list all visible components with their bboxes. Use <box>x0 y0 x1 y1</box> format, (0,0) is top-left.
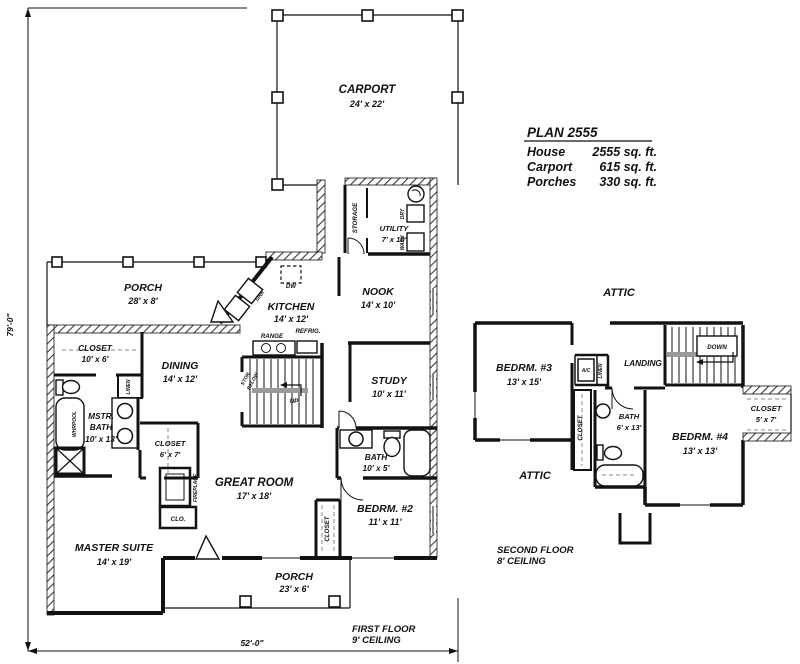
first-floor-plan: DRY WASH STORAGE UTILITY 7' x 10' PORCH … <box>47 178 437 646</box>
clo-label: CLO. <box>171 516 186 523</box>
hall-closet-dining: LINEN CLOSET 10' x 6' DINING 14' x 12' <box>54 332 198 398</box>
whirlpool-label: WHRPOOL <box>72 411 78 437</box>
master-closet-size: 6' x 7' <box>160 450 182 459</box>
dryer-icon <box>407 205 424 222</box>
wall-porch-back <box>47 325 240 333</box>
front-porch-label: PORCH <box>124 282 162 294</box>
range-icon <box>253 341 295 355</box>
rear-porch: PORCH 23' x 6' <box>163 558 350 608</box>
range-label: RANGE <box>261 333 284 340</box>
stairs-down-label: DOWN <box>707 344 727 351</box>
master-suite-size: 14' x 19' <box>97 557 132 567</box>
master-bath: WHRPOOL MSTR. BATH 10' x 13' <box>54 398 138 476</box>
dimension-annotations: 79'-0" 52'-0" <box>5 8 458 662</box>
sink-icon <box>596 404 610 418</box>
closet4-size: 5' x 7' <box>756 415 778 424</box>
kitchen-nook: SINK DW RANGE REFRIG. KITCHEN 14' x 12' … <box>211 257 430 355</box>
landing-label: LANDING <box>624 358 662 368</box>
carport-label: CARPORT <box>339 84 397 96</box>
bedroom3-label: BEDRM. #3 <box>496 362 552 374</box>
master-bath-size: 10' x 13' <box>85 434 118 444</box>
nook-size: 14' x 10' <box>361 300 396 310</box>
front-porch-size: 28' x 8' <box>127 296 158 306</box>
plan-row-label-carport: Carport <box>527 160 573 174</box>
second-floor-caption-2: 8' CEILING <box>497 556 546 567</box>
utility-room: DRY WASH STORAGE UTILITY 7' x 10' <box>345 185 430 254</box>
ac-linen-closets: A/C LINEN <box>575 355 608 388</box>
overall-height-dimension: 79'-0" <box>5 313 15 337</box>
nook-label: NOOK <box>362 286 395 298</box>
hall-bath-label: BATH <box>365 452 388 462</box>
hall-bath: BATH 10' x 5' <box>337 411 437 500</box>
whirlpool-tub-icon <box>56 398 84 450</box>
carport-size: 24' x 22' <box>349 99 385 109</box>
rear-door-swing <box>196 536 219 559</box>
hall-bath-size: 10' x 5' <box>362 463 390 473</box>
dim-arrow-right <box>449 648 458 654</box>
washer-icon <box>407 233 424 251</box>
toilet-icon <box>605 447 622 460</box>
floor-plan-page: 79'-0" 52'-0" PLAN 2555 House 2555 sq. f… <box>0 0 800 664</box>
bedroom2-closet-label: CLOSET <box>324 515 331 541</box>
toilet-icon <box>63 381 80 394</box>
floor-plan-drawing: 79'-0" 52'-0" PLAN 2555 House 2555 sq. f… <box>0 0 800 664</box>
bedroom4-label: BEDRM. #4 <box>672 431 728 443</box>
wall-walkway <box>317 180 325 253</box>
plan-row-value-house: 2555 sq. ft. <box>591 145 657 159</box>
closet4-label: CLOSET <box>751 404 783 413</box>
master-suite-label: MASTER SUITE <box>75 542 154 554</box>
dining-label: DINING <box>162 360 199 372</box>
great-room-label: GREAT ROOM <box>215 477 294 489</box>
bedroom-3: BEDRM. #3 13' x 15' <box>496 362 552 387</box>
great-room: FIREPLACE CLO. GREAT ROOM 17' x 18' <box>160 468 294 559</box>
bedroom-4: BEDRM. #4 13' x 13' <box>645 431 743 508</box>
upstairs-bath-size: 6' x 13' <box>617 423 643 432</box>
attic-upper-label: ATTIC <box>602 287 636 299</box>
rear-porch-size: 23' x 6' <box>278 584 309 594</box>
overall-width-dimension: 52'-0" <box>240 638 264 648</box>
dim-arrow-top <box>25 8 31 17</box>
plan-row-label-house: House <box>527 145 565 159</box>
wall-left-exterior <box>47 325 54 615</box>
master-closet-label: CLOSET <box>155 439 187 448</box>
dim-arrow-left <box>28 648 37 654</box>
bathtub-icon <box>404 430 430 476</box>
dining-size: 14' x 12' <box>163 374 198 384</box>
dryer-label: DRY <box>400 208 406 219</box>
hall-closet2-label: CLOSET <box>577 414 584 440</box>
stairs-up-label: UP <box>290 398 299 405</box>
plan-row-value-carport: 615 sq. ft. <box>599 160 657 174</box>
hall-closet-size: 10' x 6' <box>81 354 109 364</box>
hall-closet-label: CLOSET <box>78 343 113 353</box>
great-room-size: 17' x 18' <box>237 491 272 501</box>
study-size: 10' x 11' <box>372 389 407 399</box>
refrigerator-label: REFRIG. <box>295 328 320 335</box>
plan-info-box: PLAN 2555 House 2555 sq. ft. Carport 615… <box>524 125 657 189</box>
plan-title: PLAN 2555 <box>527 125 598 140</box>
refrigerator-icon <box>297 341 317 353</box>
kitchen-label: KITCHEN <box>268 301 315 313</box>
study-label: STUDY <box>371 375 408 387</box>
second-floor-plan: ATTIC ATTIC BEDRM. #3 13' x 15' A/C LINE… <box>472 287 791 567</box>
first-floor-caption-2: 9' CEILING <box>352 635 401 646</box>
toilet-tank-icon <box>597 445 603 460</box>
bedroom4-size: 13' x 13' <box>683 446 718 456</box>
second-floor-caption-1: SECOND FLOOR <box>497 545 574 556</box>
chimney-outline <box>620 513 650 543</box>
bedroom2-label: BEDRM. #2 <box>357 503 413 515</box>
dim-arrow-bottom <box>25 642 31 651</box>
kitchen-size: 14' x 12' <box>274 314 309 324</box>
ac-label: A/C <box>581 368 591 374</box>
fireplace-label: FIREPLACE <box>193 473 199 502</box>
wall-right-exterior <box>430 178 437 558</box>
attic-lower-label: ATTIC <box>518 470 552 482</box>
dishwasher-icon <box>281 266 301 283</box>
wall-utility-top <box>345 178 433 185</box>
first-floor-caption-1: FIRST FLOOR <box>352 624 415 635</box>
utility-size: 7' x 10' <box>382 235 408 244</box>
upstairs-bath-label: BATH <box>619 412 640 421</box>
bedroom2-size: 11' x 11' <box>369 517 403 527</box>
linen2-label: LINEN <box>598 363 604 378</box>
stairs-first-floor: UP STOR. BELOW <box>240 343 322 428</box>
bedroom4-closet: CLOSET 5' x 7' <box>743 386 791 441</box>
plan-row-value-porches: 330 sq. ft. <box>599 175 657 189</box>
rear-porch-label: PORCH <box>275 571 313 583</box>
carport: CARPORT 24' x 22' <box>272 10 463 190</box>
master-bath-label-1: MSTR. <box>88 411 114 421</box>
bedroom-2: CLOSET BEDRM. #2 11' x 11' <box>316 500 436 558</box>
master-bath-label-2: BATH <box>90 422 113 432</box>
wall-kitchen-top <box>266 252 322 260</box>
linen-label: LINEN <box>126 379 132 394</box>
storage-label: STORAGE <box>352 202 359 233</box>
utility-label: UTILITY <box>380 224 410 233</box>
water-heater-icon <box>408 186 424 202</box>
plan-row-label-porches: Porches <box>527 175 576 189</box>
bedroom3-size: 13' x 15' <box>507 377 542 387</box>
upstairs-bath: CLOSET BATH 6' x 13' <box>574 388 665 487</box>
stairs-second-floor: LANDING DOWN <box>624 325 743 388</box>
dishwasher-label: DW <box>286 283 297 290</box>
